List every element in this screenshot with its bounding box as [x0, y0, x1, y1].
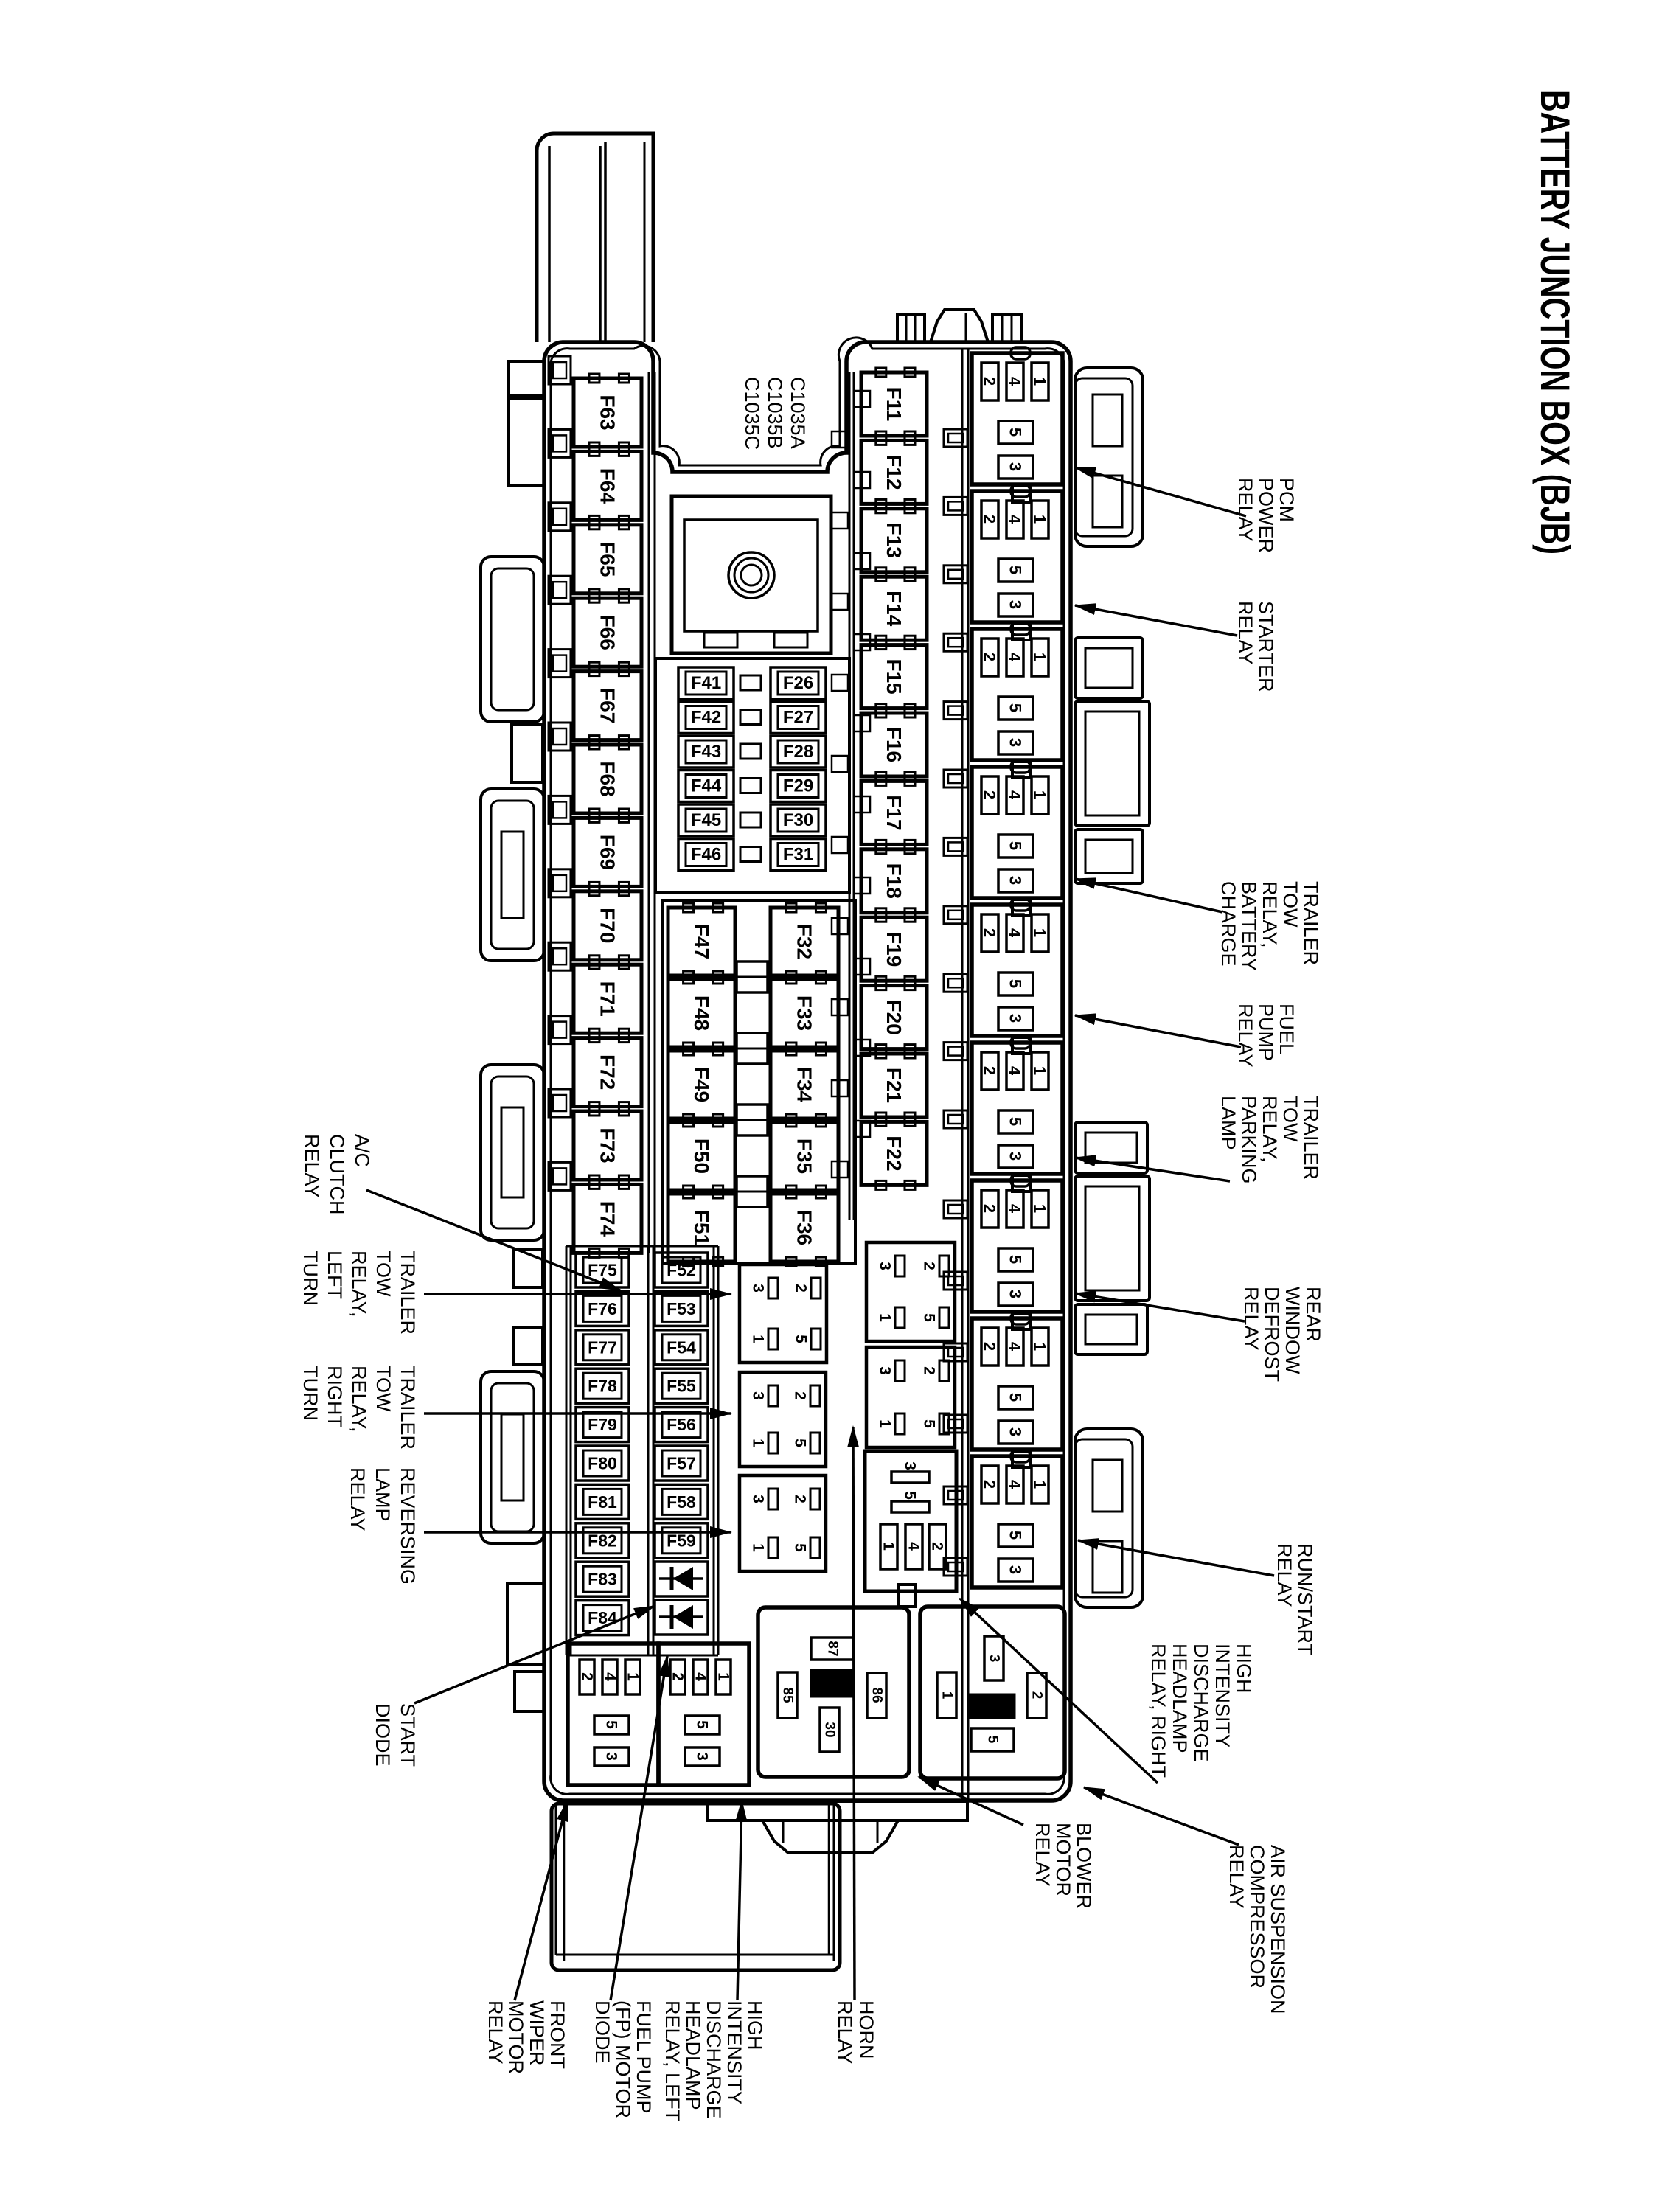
svg-text:TURN: TURN [299, 1251, 321, 1306]
svg-text:BATTERY: BATTERY [1238, 881, 1260, 971]
svg-text:3: 3 [877, 1366, 894, 1375]
svg-text:F68: F68 [597, 761, 619, 796]
svg-text:3: 3 [694, 1752, 711, 1761]
svg-text:1: 1 [1031, 1342, 1049, 1351]
svg-text:4: 4 [905, 1542, 922, 1551]
svg-text:2: 2 [981, 1204, 999, 1213]
svg-text:F64: F64 [597, 468, 619, 504]
svg-text:2: 2 [921, 1262, 938, 1270]
svg-text:F53: F53 [667, 1299, 696, 1318]
svg-text:LEFT: LEFT [324, 1251, 346, 1299]
svg-text:RELAY: RELAY [1234, 601, 1256, 665]
svg-text:RELAY: RELAY [484, 2000, 507, 2065]
svg-text:5: 5 [921, 1313, 938, 1322]
svg-text:5: 5 [1006, 1531, 1025, 1540]
svg-text:TOW: TOW [372, 1251, 394, 1297]
svg-text:C1035C: C1035C [741, 377, 763, 450]
svg-text:F74: F74 [597, 1201, 619, 1237]
svg-text:TOW: TOW [1279, 881, 1301, 928]
svg-text:2: 2 [981, 653, 999, 661]
svg-text:3: 3 [902, 1461, 919, 1470]
svg-text:START: START [397, 1703, 419, 1767]
svg-text:F82: F82 [588, 1531, 617, 1550]
svg-text:1: 1 [877, 1419, 894, 1428]
svg-text:F20: F20 [883, 999, 905, 1034]
svg-text:RUN/START: RUN/START [1294, 1543, 1316, 1655]
svg-text:TRAILER: TRAILER [397, 1251, 419, 1335]
svg-text:F44: F44 [691, 776, 722, 796]
svg-text:2: 2 [793, 1284, 810, 1293]
svg-text:5: 5 [1006, 841, 1025, 850]
svg-text:INTENSITY: INTENSITY [723, 2000, 745, 2104]
svg-text:5: 5 [792, 1543, 809, 1552]
svg-text:F65: F65 [597, 541, 619, 577]
svg-text:RELAY: RELAY [1234, 478, 1256, 542]
svg-text:F27: F27 [783, 708, 813, 728]
svg-text:F35: F35 [793, 1138, 816, 1174]
svg-text:3: 3 [1006, 462, 1025, 471]
svg-text:HORN: HORN [855, 2000, 877, 2059]
svg-text:BATTERY JUNCTION BOX (BJB): BATTERY JUNCTION BOX (BJB) [1532, 90, 1579, 554]
svg-text:1: 1 [625, 1672, 641, 1681]
svg-text:F26: F26 [783, 673, 813, 693]
svg-text:5: 5 [1006, 428, 1025, 437]
svg-text:F79: F79 [588, 1415, 617, 1434]
svg-text:HEADLAMP: HEADLAMP [1169, 1644, 1191, 1753]
svg-text:F56: F56 [667, 1415, 696, 1434]
svg-text:F28: F28 [783, 742, 813, 762]
svg-text:2: 2 [921, 1366, 938, 1375]
svg-text:4: 4 [1006, 1342, 1024, 1352]
svg-text:3: 3 [750, 1391, 767, 1400]
svg-text:5: 5 [793, 1335, 810, 1343]
svg-text:RELAY: RELAY [301, 1134, 323, 1198]
svg-text:5: 5 [603, 1720, 620, 1729]
svg-text:4: 4 [1006, 653, 1024, 662]
svg-text:1: 1 [1031, 1204, 1049, 1213]
svg-text:RELAY: RELAY [1032, 1823, 1054, 1887]
svg-text:FUEL PUMP: FUEL PUMP [633, 2000, 655, 2114]
svg-text:3: 3 [1006, 1565, 1025, 1574]
svg-text:F21: F21 [883, 1068, 905, 1103]
svg-text:F11: F11 [883, 387, 905, 422]
svg-text:BLOWER: BLOWER [1073, 1823, 1095, 1909]
svg-text:F78: F78 [588, 1377, 617, 1396]
svg-text:PUMP: PUMP [1255, 1004, 1277, 1061]
svg-text:1: 1 [1031, 1066, 1049, 1075]
svg-text:F55: F55 [667, 1377, 696, 1396]
svg-text:4: 4 [1006, 928, 1024, 938]
svg-text:F14: F14 [883, 591, 905, 627]
svg-text:RIGHT: RIGHT [324, 1366, 346, 1427]
svg-text:FRONT: FRONT [546, 2000, 568, 2069]
svg-text:F50: F50 [690, 1138, 713, 1174]
svg-text:F80: F80 [588, 1454, 617, 1473]
svg-text:INTENSITY: INTENSITY [1211, 1644, 1234, 1747]
svg-text:F29: F29 [783, 776, 813, 796]
svg-text:RELAY: RELAY [1234, 1004, 1256, 1068]
svg-text:3: 3 [1006, 1014, 1025, 1023]
svg-text:2: 2 [792, 1391, 809, 1400]
svg-text:1: 1 [1031, 653, 1049, 661]
svg-text:2: 2 [1029, 1691, 1045, 1700]
svg-text:F22: F22 [883, 1135, 905, 1171]
svg-text:C1035A: C1035A [787, 377, 809, 449]
svg-text:5: 5 [1006, 1255, 1025, 1264]
svg-text:REVERSING: REVERSING [397, 1467, 419, 1585]
svg-text:RELAY,: RELAY, [1259, 1096, 1281, 1163]
svg-text:RELAY: RELAY [1273, 1543, 1295, 1607]
svg-text:5: 5 [792, 1439, 809, 1447]
svg-text:WINDOW: WINDOW [1281, 1287, 1304, 1374]
svg-text:F48: F48 [690, 995, 713, 1031]
svg-text:F73: F73 [597, 1127, 619, 1163]
svg-text:TRAILER: TRAILER [397, 1366, 419, 1450]
svg-text:TRAILER: TRAILER [1300, 1096, 1322, 1180]
svg-text:85: 85 [780, 1687, 796, 1703]
svg-text:3: 3 [750, 1284, 767, 1293]
svg-text:2: 2 [981, 377, 999, 386]
svg-text:2: 2 [929, 1542, 946, 1551]
svg-text:5: 5 [902, 1491, 919, 1500]
svg-text:F16: F16 [883, 727, 905, 762]
svg-text:5: 5 [985, 1736, 1001, 1744]
svg-text:PCM: PCM [1276, 478, 1298, 522]
svg-text:F72: F72 [597, 1054, 619, 1090]
svg-text:RELAY: RELAY [1240, 1287, 1262, 1351]
svg-text:2: 2 [981, 790, 999, 799]
svg-text:WIPER: WIPER [526, 2000, 548, 2066]
svg-text:2: 2 [981, 1480, 999, 1489]
svg-text:F71: F71 [597, 981, 619, 1017]
svg-text:HEADLAMP: HEADLAMP [682, 2000, 704, 2110]
svg-text:F69: F69 [597, 835, 619, 870]
svg-text:1: 1 [750, 1543, 767, 1552]
svg-text:5: 5 [1006, 1393, 1025, 1402]
svg-text:4: 4 [1006, 1066, 1024, 1076]
svg-text:F59: F59 [667, 1531, 696, 1550]
svg-text:MOTOR: MOTOR [1052, 1823, 1074, 1896]
svg-text:3: 3 [1006, 1427, 1025, 1436]
svg-text:DEFROST: DEFROST [1261, 1287, 1283, 1382]
svg-text:F54: F54 [667, 1338, 696, 1357]
svg-text:LAMP: LAMP [372, 1467, 394, 1522]
svg-text:F12: F12 [883, 454, 905, 490]
svg-text:F49: F49 [690, 1067, 713, 1102]
svg-text:AIR SUSPENSION: AIR SUSPENSION [1267, 1845, 1289, 2014]
svg-text:F42: F42 [691, 708, 721, 728]
svg-text:RELAY,: RELAY, [1259, 881, 1281, 948]
svg-text:F51: F51 [690, 1210, 713, 1245]
svg-text:F32: F32 [793, 924, 816, 959]
svg-text:4: 4 [1006, 1480, 1024, 1489]
svg-text:1: 1 [877, 1313, 894, 1322]
svg-text:F84: F84 [588, 1608, 617, 1627]
svg-text:F66: F66 [597, 615, 619, 650]
svg-text:3: 3 [1006, 1152, 1025, 1161]
svg-text:PARKING: PARKING [1238, 1096, 1260, 1184]
svg-text:FUEL: FUEL [1276, 1004, 1298, 1054]
svg-text:COMPRESSOR: COMPRESSOR [1246, 1845, 1268, 1989]
svg-text:CLUTCH: CLUTCH [326, 1134, 348, 1215]
svg-text:HIGH: HIGH [1233, 1644, 1255, 1694]
svg-text:DISCHARGE: DISCHARGE [1190, 1644, 1212, 1762]
svg-text:TRAILER: TRAILER [1300, 881, 1322, 965]
svg-text:F81: F81 [588, 1492, 617, 1512]
svg-text:F83: F83 [588, 1570, 617, 1589]
svg-text:2: 2 [792, 1495, 809, 1503]
svg-text:C1035B: C1035B [764, 377, 786, 449]
svg-text:1: 1 [750, 1439, 767, 1447]
svg-text:3: 3 [987, 1655, 1002, 1663]
svg-text:F58: F58 [667, 1492, 696, 1512]
svg-text:TOW: TOW [372, 1366, 394, 1412]
svg-text:2: 2 [981, 1066, 999, 1075]
svg-text:F57: F57 [667, 1454, 696, 1473]
svg-text:STARTER: STARTER [1255, 601, 1277, 692]
svg-text:1: 1 [880, 1542, 897, 1551]
svg-text:RELAY, RIGHT: RELAY, RIGHT [1147, 1644, 1169, 1778]
svg-text:1: 1 [1031, 928, 1049, 937]
svg-text:TOW: TOW [1279, 1096, 1301, 1142]
svg-text:5: 5 [694, 1720, 711, 1729]
svg-text:F33: F33 [793, 995, 816, 1031]
svg-text:TURN: TURN [299, 1366, 321, 1421]
svg-text:DIODE: DIODE [372, 1703, 394, 1767]
svg-text:5: 5 [921, 1419, 938, 1428]
svg-text:F70: F70 [597, 908, 619, 943]
svg-text:RELAY: RELAY [347, 1467, 369, 1531]
svg-text:LAMP: LAMP [1217, 1096, 1239, 1150]
svg-text:3: 3 [877, 1262, 894, 1270]
svg-text:F47: F47 [690, 924, 713, 959]
svg-text:86: 86 [869, 1687, 885, 1703]
svg-text:1: 1 [750, 1335, 767, 1343]
svg-text:1: 1 [1031, 1480, 1049, 1489]
svg-text:RELAY,: RELAY, [348, 1251, 370, 1318]
svg-text:F31: F31 [783, 845, 813, 865]
svg-text:HIGH: HIGH [744, 2000, 766, 2051]
svg-text:F52: F52 [667, 1261, 696, 1280]
svg-text:F77: F77 [588, 1338, 617, 1357]
svg-text:5: 5 [1006, 979, 1025, 988]
svg-text:2: 2 [981, 928, 999, 937]
svg-text:A/C: A/C [351, 1134, 373, 1167]
svg-text:F41: F41 [691, 673, 721, 693]
svg-text:REAR: REAR [1302, 1287, 1324, 1342]
svg-text:5: 5 [1006, 703, 1025, 712]
svg-text:1: 1 [1031, 377, 1049, 386]
svg-text:2: 2 [981, 515, 999, 524]
svg-text:87: 87 [825, 1641, 841, 1656]
svg-text:F18: F18 [883, 863, 905, 899]
svg-text:F17: F17 [883, 795, 905, 830]
svg-text:2: 2 [579, 1672, 596, 1681]
svg-text:1: 1 [1031, 790, 1049, 799]
svg-text:F13: F13 [883, 523, 905, 558]
svg-text:F15: F15 [883, 658, 905, 694]
svg-text:3: 3 [1006, 600, 1025, 609]
svg-text:DIODE: DIODE [591, 2000, 613, 2064]
svg-text:4: 4 [1006, 1204, 1024, 1214]
svg-text:POWER: POWER [1255, 478, 1277, 553]
svg-text:1: 1 [715, 1672, 732, 1681]
svg-text:3: 3 [1006, 738, 1025, 747]
svg-text:F45: F45 [691, 810, 721, 830]
svg-text:F76: F76 [588, 1299, 617, 1318]
svg-text:F36: F36 [793, 1210, 816, 1245]
svg-text:(FP) MOTOR: (FP) MOTOR [612, 2000, 634, 2118]
svg-text:2: 2 [981, 1342, 999, 1351]
svg-text:RELAY: RELAY [834, 2000, 856, 2065]
svg-text:4: 4 [602, 1672, 619, 1681]
svg-text:CHARGE: CHARGE [1217, 881, 1239, 967]
svg-text:F46: F46 [691, 845, 721, 865]
svg-text:5: 5 [1006, 566, 1025, 574]
svg-text:2: 2 [669, 1672, 686, 1681]
svg-text:F75: F75 [588, 1261, 617, 1280]
svg-text:F19: F19 [883, 931, 905, 967]
svg-text:30: 30 [822, 1722, 838, 1737]
svg-text:F34: F34 [793, 1067, 816, 1103]
svg-text:5: 5 [1006, 1117, 1025, 1126]
svg-text:F67: F67 [597, 688, 619, 723]
svg-text:3: 3 [603, 1752, 620, 1761]
svg-text:4: 4 [692, 1672, 709, 1681]
svg-text:4: 4 [1006, 377, 1024, 386]
svg-text:1: 1 [939, 1691, 955, 1700]
svg-text:3: 3 [750, 1495, 767, 1503]
svg-text:F43: F43 [691, 742, 721, 762]
svg-text:4: 4 [1006, 790, 1024, 800]
svg-text:MOTOR: MOTOR [505, 2000, 527, 2074]
svg-text:3: 3 [1006, 876, 1025, 885]
svg-text:RELAY, LEFT: RELAY, LEFT [661, 2000, 684, 2121]
svg-text:F30: F30 [783, 810, 813, 830]
svg-text:RELAY,: RELAY, [348, 1366, 370, 1433]
svg-text:DISCHARGE: DISCHARGE [703, 2000, 725, 2119]
svg-text:3: 3 [1006, 1290, 1025, 1298]
svg-text:F63: F63 [597, 394, 619, 430]
svg-text:RELAY: RELAY [1225, 1845, 1248, 1909]
svg-text:4: 4 [1006, 515, 1024, 524]
svg-text:1: 1 [1031, 515, 1049, 524]
